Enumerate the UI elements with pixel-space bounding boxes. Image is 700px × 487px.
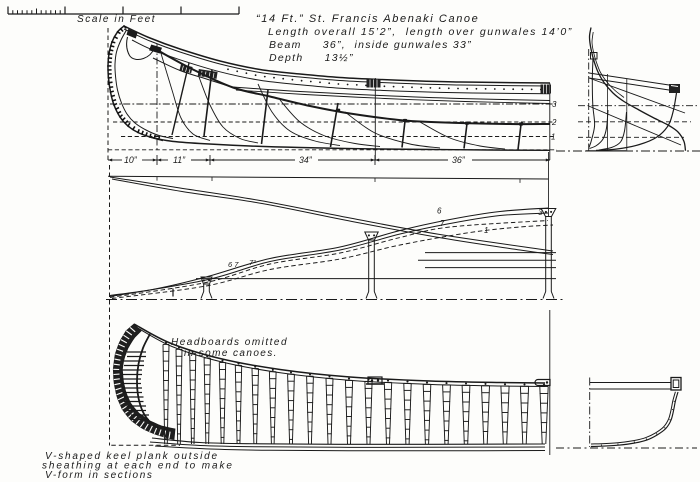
svg-text:3: 3 — [552, 100, 557, 109]
svg-text:1: 1 — [484, 226, 488, 235]
svg-text:in some canoes.: in some canoes. — [184, 348, 278, 359]
svg-text:36”: 36” — [452, 155, 466, 165]
svg-text:2: 2 — [551, 118, 557, 127]
svg-text:34”: 34” — [299, 155, 313, 165]
svg-text:Beam 36”, inside gunwales: Beam 36”, inside gunwales 33” — [269, 39, 472, 51]
svg-text:Headboards omitted: Headboards omitted — [171, 337, 288, 348]
svg-text:Length overall 15’2”, length: Length overall 15’2”, length over gunwal… — [268, 26, 573, 38]
svg-text:“14 Ft.” St. Francis Abenaki C: “14 Ft.” St. Francis Abenaki Canoe — [256, 13, 479, 25]
svg-text:Depth 13½”: Depth 13½” — [269, 52, 354, 64]
svg-text:6 7: 6 7 — [228, 260, 239, 269]
svg-text:V-form in sections: V-form in sections — [45, 470, 153, 481]
svg-text:7: 7 — [440, 219, 445, 228]
svg-text:3: 3 — [538, 208, 543, 217]
svg-text:10”: 10” — [124, 155, 138, 165]
svg-text:Scale in Feet: Scale in Feet — [77, 14, 156, 25]
svg-text:1: 1 — [551, 133, 555, 142]
svg-text:7²: 7² — [249, 258, 256, 267]
svg-text:6: 6 — [437, 207, 442, 216]
svg-text:11”: 11” — [173, 155, 186, 165]
